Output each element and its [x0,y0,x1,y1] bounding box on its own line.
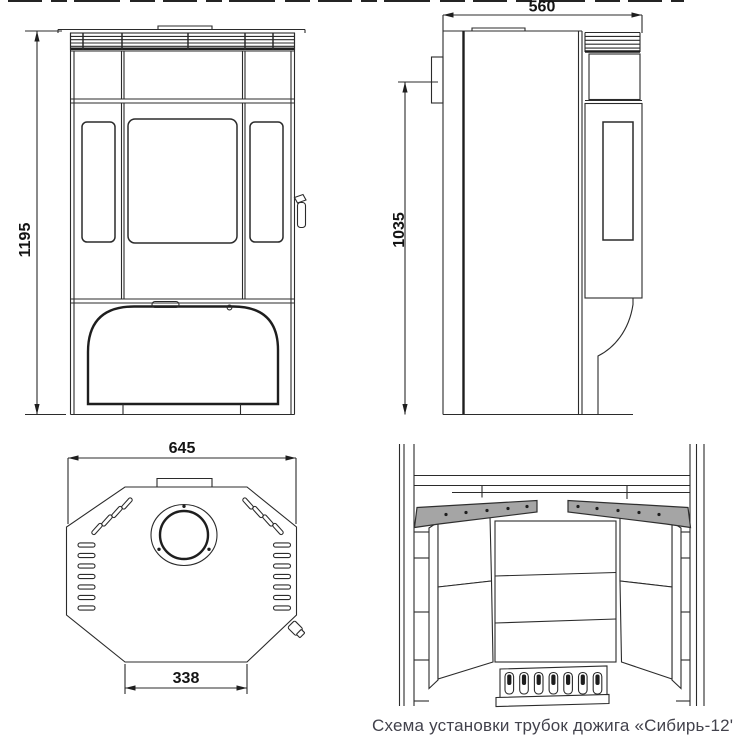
side-upper-panel [589,54,640,100]
side-vent-slots-left [78,543,95,610]
flue-opening [151,505,217,566]
dim-front-height: 1195 [17,223,34,258]
drawing-svg: 1195 [0,0,750,750]
diagram-caption: Схема установки трубок дожига «Сибирь-12… [372,716,733,736]
rear-tab [157,479,212,488]
top-base-dimension: 338 [125,664,247,694]
front-height-dimension: 1195 [17,31,66,415]
right-side-glass [250,122,283,242]
back-lining-panel [495,521,616,662]
dim-top-width: 645 [169,440,196,457]
door-handle [295,195,307,228]
corner-vent-slots-right [242,497,284,535]
side-vent-slots-right [274,543,291,610]
right-lining-bricks [620,517,681,689]
left-lining-bricks [429,517,493,689]
side-glass-window [603,122,633,240]
door-glass [128,119,237,243]
rear-flue-connector [432,57,444,103]
side-height-dimension: 1035 [391,82,438,415]
front-view: 1195 [17,26,306,415]
dim-side-depth: 560 [529,0,556,16]
dim-side-height: 1035 [391,212,408,248]
side-grille [585,33,640,53]
top-view: 645 [67,440,306,694]
top-view-handle [288,621,306,639]
side-view: 560 1035 [391,0,642,415]
corner-vent-slots-left [91,497,133,535]
stove-technical-drawing: 1195 [0,0,750,750]
firebox-interior-view [400,444,705,707]
upper-panel-row [71,51,295,103]
side-panel-bracket [598,298,633,415]
dim-top-base-width: 338 [173,670,200,687]
wood-compartment-door [88,307,278,405]
left-side-glass [82,122,115,242]
fire-grate [496,666,609,707]
top-grille [71,33,295,50]
